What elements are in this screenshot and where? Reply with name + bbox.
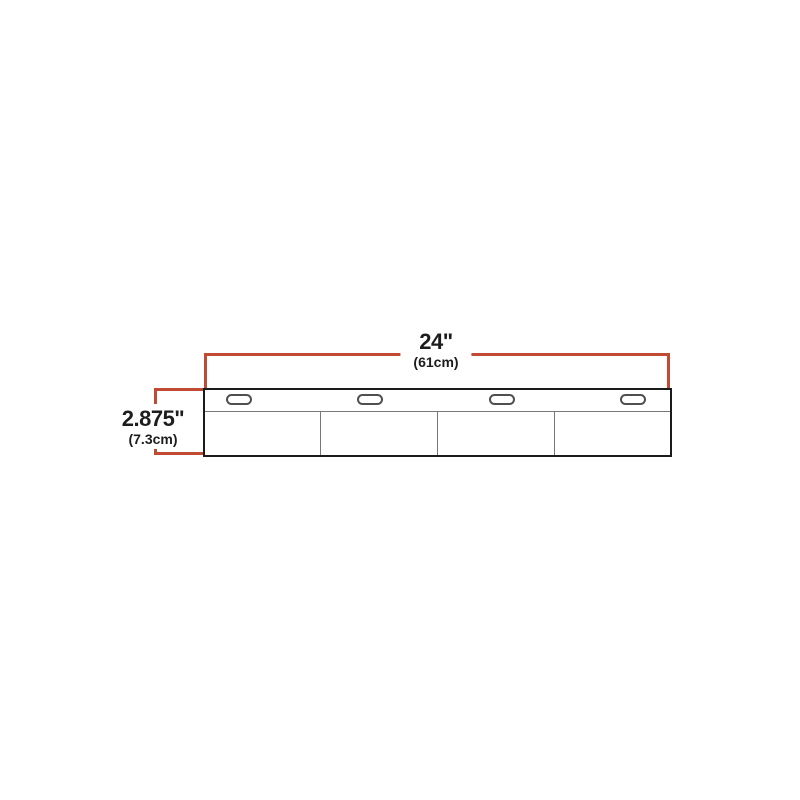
product-outline: [203, 388, 672, 457]
mounting-rail: [205, 390, 670, 412]
width-dimension-label-group: 24" (61cm): [400, 329, 471, 370]
mounting-slot-icon: [489, 394, 515, 405]
height-dimension-metric: (7.3cm): [122, 431, 184, 447]
panel-divider: [437, 412, 438, 455]
dimension-diagram: 24" (61cm) 2.875" (7.3cm): [0, 0, 800, 800]
panel-divider: [554, 412, 555, 455]
height-dimension-value: 2.875": [122, 406, 184, 431]
height-dimension-label-group: 2.875" (7.3cm): [117, 404, 189, 449]
width-dimension-value: 24": [413, 329, 458, 354]
width-dimension-metric: (61cm): [413, 354, 458, 370]
mounting-slot-icon: [620, 394, 646, 405]
mounting-slot-icon: [226, 394, 252, 405]
mounting-slot-icon: [357, 394, 383, 405]
panel-divider: [320, 412, 321, 455]
